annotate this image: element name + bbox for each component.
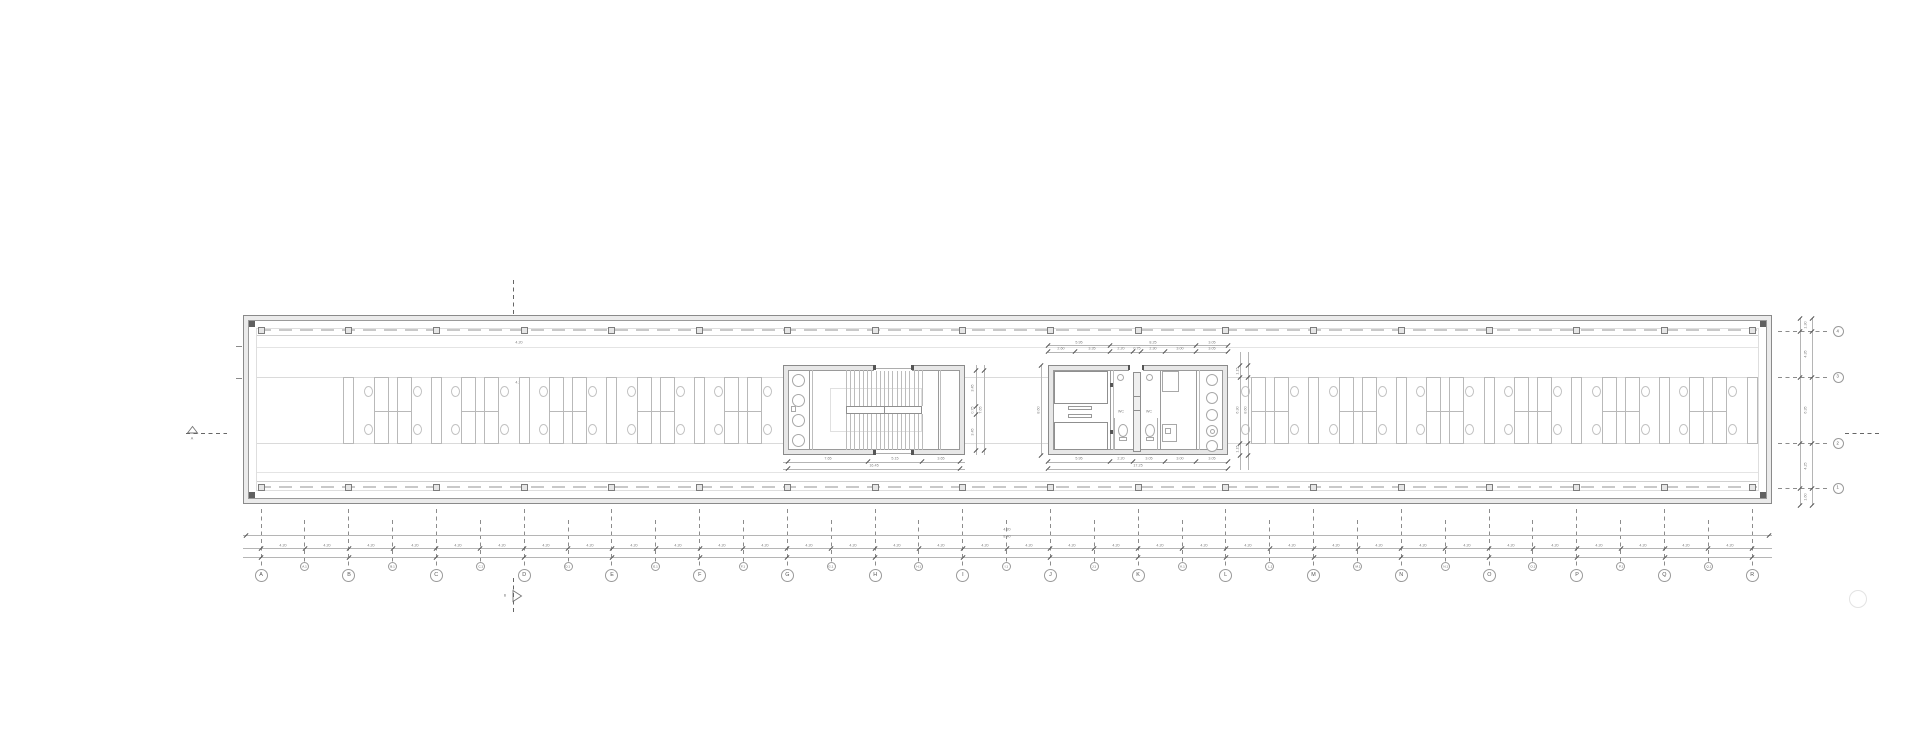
grid-bubble-row: 1 [1833,483,1844,494]
column-top [1749,327,1756,334]
interior-line-faint-top [257,347,1758,348]
dim-text: 4.20 [1683,544,1690,548]
grid-bubble-major: I [956,569,969,582]
shaft-duct-circle [792,374,805,387]
corner-post [249,321,255,327]
grid-bubble-major: F [693,569,706,582]
desk-divider [1251,411,1289,412]
shaft-fixture [791,406,796,412]
chair [413,424,422,435]
stair-tread [909,370,910,406]
toilet-tank [1146,437,1154,441]
section-arrow-right [513,591,522,602]
riser-pipe-circle [1206,392,1218,404]
riser-pipe-circle [1206,409,1218,421]
riser-pipe-inner [1210,429,1215,434]
grid-bubble-major-label: I [962,572,964,577]
grid-bubble-minor-label: L.1 [1268,565,1272,568]
grid-line-major [962,509,963,568]
service-partition [1160,370,1161,450]
chair [1378,424,1387,435]
interior-line-soffit-top [257,335,1758,336]
dim-text: 3.05 [1208,341,1215,345]
column-bottom [1486,484,1493,491]
dim-text: 6.35 [1804,406,1808,413]
grid-bubble-major: C [430,569,443,582]
stair-tread [918,414,919,450]
stair-tread [901,414,902,450]
chair [1592,424,1601,435]
column-bottom [1310,484,1317,491]
corner-post [1760,492,1766,498]
chair [364,386,373,397]
chair [1504,424,1513,435]
grid-bubble-major: N [1395,569,1408,582]
grid-bubble-minor-label: J.1 [1092,565,1096,568]
column-bottom [521,484,528,491]
grid-bubble-major: M [1307,569,1320,582]
service-room-upper [1162,371,1179,392]
dim-text: 3.05 [1145,457,1152,461]
grid-line-major [875,509,876,568]
storage-cabinet [1747,377,1758,444]
dim-line [1048,462,1228,463]
dim-line [1800,318,1801,505]
stair-tread [876,414,877,450]
chair [1290,424,1299,435]
stair-tread [854,370,855,406]
interior-line-faint-bottom [257,472,1758,473]
stair-tread [880,414,881,450]
grid-line-major [436,509,437,568]
grid-bubble-major: G [781,569,794,582]
desk-divider [724,411,762,412]
dim-text: 5.15 [891,457,898,461]
chair [1378,386,1387,397]
stair-tread [880,370,881,406]
grid-line-major [1576,509,1577,568]
dim-text: 2.20 [1117,347,1124,351]
room-label-wc: WC [1118,410,1124,414]
dim-text: 4.20 [981,544,988,548]
column-top [1310,327,1317,334]
grid-line-minor [918,520,919,562]
column-bottom [784,484,791,491]
column-top [345,327,352,334]
grid-bubble-minor-label: D.1 [566,565,571,568]
column-bottom [608,484,615,491]
interior-line-soffit-bottom [257,481,1758,482]
desk-divider [461,411,499,412]
grid-bubble-minor-label: A.1 [303,565,308,568]
grid-bubble-major-label: A [259,572,263,577]
door-opening [1129,365,1143,371]
chair [1553,386,1562,397]
dim-text: 4.20 [806,544,813,548]
stair-tread [859,370,860,406]
dim-text: 8.60 [1037,406,1041,413]
column-bottom [959,484,966,491]
section-label: A [191,437,193,441]
grid-bubble-minor-label: H.1 [917,565,922,568]
wc-partition [1157,418,1158,450]
dim-text: 4.20 [1551,544,1558,548]
grid-line-major [1050,509,1051,568]
column-bottom [696,484,703,491]
grid-line-major [611,509,612,568]
elevator-door-jamb [1110,430,1114,434]
storage-cabinet [519,377,530,444]
elevator-shaft-2 [1054,422,1108,450]
door-opening-line [874,453,912,454]
grid-bubble-major: Q [1658,569,1671,582]
column-bottom [872,484,879,491]
elevator-shaft-1 [1054,371,1108,404]
dim-text: 4.20 [849,544,856,548]
desk-divider [1689,411,1727,412]
stair-tread [846,414,847,450]
dim-line [783,469,965,470]
column-top [433,327,440,334]
chair [588,386,597,397]
door-jamb [873,365,876,371]
grid-line-major [524,509,525,568]
toilet [1118,424,1128,437]
level-mark: 4.20 [1003,528,1010,532]
grid-line-minor [831,520,832,562]
dim-text: 3.00 [1176,457,1183,461]
dim-line [783,462,965,463]
grid-line-minor [1006,520,1007,562]
grid-line-minor [1357,520,1358,562]
section-line-vertical-top [513,280,514,316]
dim-text: 1.60 [1804,493,1808,500]
column-bottom [1222,484,1229,491]
stair-tread [846,370,847,406]
grid-bubble-minor-label: E.1 [653,565,658,568]
grid-line-major [1313,509,1314,568]
dim-text: 4.20 [1639,544,1646,548]
stair-tread [922,370,923,406]
grid-line-major [1489,509,1490,568]
grid-bubble-major-label: J [1049,572,1052,577]
chase-tick [1133,396,1141,397]
dim-text: 4.20 [455,544,462,548]
wall-tick [236,378,242,379]
grid-bubble-minor-label: O.1 [1531,565,1536,568]
dim-text: 3.45 [971,384,975,391]
grid-bubble-major: J [1044,569,1057,582]
grid-line-minor [1532,520,1533,562]
grid-bubble-row-label: 4 [1837,329,1839,333]
storage-cabinet [1659,377,1670,444]
interior-row2-line [257,443,1758,444]
grid-line-minor [568,520,569,562]
chair [1329,386,1338,397]
dim-text: 0.75 [971,406,975,413]
row-leader-line [1778,443,1830,444]
storage-cabinet [1396,377,1407,444]
dim-text: 4.20 [1595,544,1602,548]
grid-bubble-major: R [1746,569,1759,582]
wall-tick [236,346,242,347]
stair-tread [905,370,906,406]
storage-cabinet [694,377,705,444]
dim-text: 4.20 [279,544,286,548]
storage-cabinet [431,377,442,444]
grid-bubble-minor: C.1 [476,562,485,571]
column-top [784,327,791,334]
dim-text: 0.75 [1133,347,1140,351]
desk-divider [1514,411,1552,412]
grid-bubble-minor-label: N.1 [1443,565,1448,568]
dim-line [984,365,985,455]
dim-text: 4.35 [1804,350,1808,357]
chair [676,386,685,397]
dim-text: 8.25 [1149,341,1156,345]
grid-bubble-minor-label: F.1 [741,565,745,568]
dim-text: 4.20 [1157,544,1164,548]
grid-bubble-major: O [1483,569,1496,582]
dim-text: 5.95 [1075,457,1082,461]
column-top [1398,327,1405,334]
stair-tread [914,370,915,406]
dim-text: 4.20 [542,544,549,548]
storage-cabinet [1308,377,1319,444]
grid-line-minor [392,520,393,562]
stair-tread [909,414,910,450]
column-bottom [433,484,440,491]
grid-line-minor [1269,520,1270,562]
column-bottom [345,484,352,491]
storage-cabinet [606,377,617,444]
grid-line-major [1664,509,1665,568]
section-line-horizontal-left [186,433,227,434]
column-bottom [258,484,265,491]
elevator-door-jamb [1110,383,1114,387]
dim-text: 4.20 [1200,544,1207,548]
grid-bubble-major: E [605,569,618,582]
chair [1329,424,1338,435]
column-top [1573,327,1580,334]
row-leader-line [1778,377,1830,378]
shaft-duct-circle [792,414,805,427]
grid-bubble-major: B [342,569,355,582]
column-top [872,327,879,334]
dim-text: 1.30 [1804,321,1808,328]
dim-text: 3.65 [937,457,944,461]
chair [1553,424,1562,435]
grid-bubble-minor: G.1 [827,562,836,571]
grid-bubble-row: 2 [1833,438,1844,449]
grid-bubble-minor: J.1 [1090,562,1099,571]
grid-bubble-minor-label: K.1 [1180,565,1185,568]
wall-level-mark: 4.20 [515,341,522,345]
door-jamb [911,450,914,456]
dim-line [1041,365,1042,455]
dim-text: 4.20 [1025,544,1032,548]
stair-tread [863,370,864,406]
stair-tread [901,370,902,406]
grid-bubble-minor: M.1 [1353,562,1362,571]
stair-tread [892,414,893,450]
chair [539,424,548,435]
stair-tread [918,370,919,406]
grid-bubble-major: A [255,569,268,582]
dim-text: 4.20 [586,544,593,548]
grid-bubble-minor-label: Q.1 [1706,565,1711,568]
dim-text: 4.20 [1376,544,1383,548]
stair-shaft-partition [809,370,810,450]
door-jamb [1128,365,1130,371]
chair [364,424,373,435]
shaft-partition [1196,370,1197,450]
chair [627,386,636,397]
column-top [696,327,703,334]
grid-line-major [261,509,262,568]
dim-text: 4.20 [1069,544,1076,548]
grid-bubble-row-label: 2 [1837,441,1839,445]
dim-text: 3.45 [971,428,975,435]
section-label: B [504,594,506,598]
stair-tread [897,370,898,406]
grid-line-major [787,509,788,568]
stair-tread [863,414,864,450]
column-top [1222,327,1229,334]
dim-text: 4.20 [1464,544,1471,548]
stair-tread [871,370,872,406]
grid-line-minor [1182,520,1183,562]
chair [1504,386,1513,397]
grid-line-minor [743,520,744,562]
chair [676,424,685,435]
dim-line [1812,318,1813,505]
stair-tread [871,414,872,450]
grid-bubble-minor: F.1 [739,562,748,571]
dim-text: 2.60 [1057,347,1064,351]
stair-tread [867,370,868,406]
grid-line-minor [655,520,656,562]
sink [1146,374,1153,381]
stair-tread [888,370,889,406]
dim-text: 4.20 [323,544,330,548]
grid-line-minor [1094,520,1095,562]
building-inner-guide [256,328,1759,491]
grid-bubble-row: 4 [1833,326,1844,337]
grid-bubble-major-label: D [522,572,526,577]
desk-divider [1602,411,1640,412]
door-jamb [1142,365,1144,371]
dim-text: 4.20 [1244,544,1251,548]
grid-bubble-row-label: 3 [1837,375,1839,379]
column-top [521,327,528,334]
dim-text: 4.20 [1507,544,1514,548]
stair-tread [850,414,851,450]
stair-right-partition [940,370,941,450]
stair-tread [884,370,885,406]
door-jamb [873,450,876,456]
dim-text: 4.20 [367,544,374,548]
dim-text: 4.20 [893,544,900,548]
stair-shaft-partition [812,370,813,450]
column-top [1047,327,1054,334]
dim-text: 4.20 [718,544,725,548]
corner-post [249,492,255,498]
row-leader-line [1778,488,1830,489]
grid-bubble-minor: B.1 [388,562,397,571]
interior-row3-line [257,377,1758,378]
chair [1592,386,1601,397]
elevator-beam [1068,414,1092,418]
grid-line-minor [1620,520,1621,562]
desk-divider [374,411,412,412]
storage-cabinet [1484,377,1495,444]
dim-text: 4.20 [1420,544,1427,548]
elevator-bank-partition [1110,370,1111,450]
dim-line [1048,345,1228,346]
room-label-wc: WC [1146,410,1152,414]
grid-bubble-major: K [1132,569,1145,582]
sink [1117,374,1124,381]
grid-bubble-minor-label: I.1 [1005,565,1008,568]
grid-line-minor [480,520,481,562]
grid-bubble-minor: D.1 [564,562,573,571]
window-sill-bottom [258,486,1757,488]
dim-text: 3.00 [1176,347,1183,351]
stair-tread [876,370,877,406]
grid-bubble-minor-label: P.1 [1619,565,1623,568]
stair-tread [850,370,851,406]
grid-bubble-minor-label: B.1 [390,565,395,568]
column-top [1486,327,1493,334]
grid-line-major [699,509,700,568]
grid-bubble-major-label: E [610,572,614,577]
column-top [258,327,265,334]
grid-bubble-major-label: H [873,572,877,577]
dim-line [243,557,1772,558]
grid-line-minor [1445,520,1446,562]
column-top [959,327,966,334]
chase-tick [1133,410,1141,411]
grid-line-major [1138,509,1139,568]
service-room-fixture [1165,428,1171,434]
column-top [1135,327,1142,334]
dim-text: 8.60 [1244,406,1248,413]
dim-text: 4.20 [1288,544,1295,548]
grid-bubble-major: D [518,569,531,582]
column-top [1661,327,1668,334]
chair [1641,424,1650,435]
grid-line-major [348,509,349,568]
dim-line [976,365,977,455]
dim-text: 3.35 [1088,347,1095,351]
dim-text: 4.20 [630,544,637,548]
storage-cabinet [343,377,354,444]
chair [1290,386,1299,397]
dim-text: 16.45 [869,464,878,468]
column-bottom [1661,484,1668,491]
chair [413,386,422,397]
grid-bubble-major: L [1219,569,1232,582]
riser-pipe-circle [1206,440,1218,452]
faint-bubble [1849,590,1867,608]
grid-line-major [1225,509,1226,568]
dim-text: 4.20 [762,544,769,548]
stair-tread [905,414,906,450]
chair [588,424,597,435]
dim-text: 7.65 [824,457,831,461]
chair [1641,386,1650,397]
